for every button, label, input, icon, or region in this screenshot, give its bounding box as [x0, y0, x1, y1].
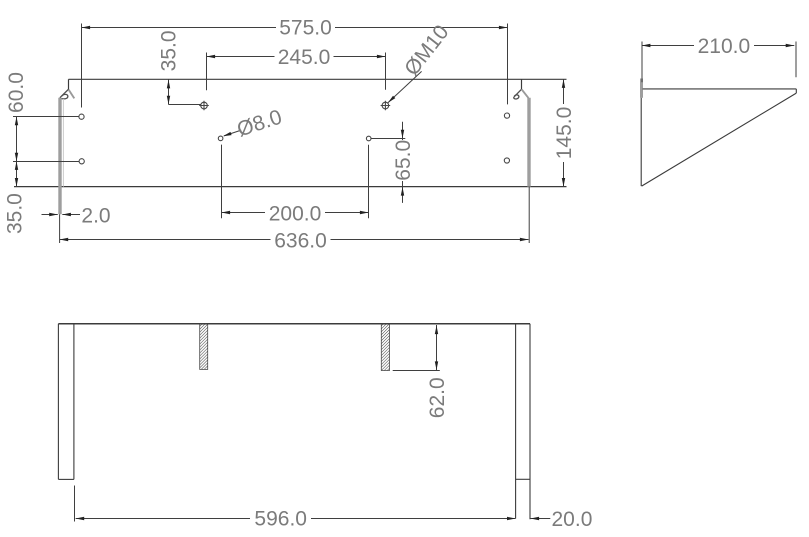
svg-text:145.0: 145.0: [553, 107, 576, 160]
svg-text:62.0: 62.0: [426, 377, 449, 418]
svg-text:35.0: 35.0: [4, 193, 27, 234]
svg-text:636.0: 636.0: [274, 230, 327, 253]
svg-text:2.0: 2.0: [81, 204, 110, 227]
svg-text:65.0: 65.0: [392, 140, 415, 181]
svg-text:35.0: 35.0: [158, 30, 181, 71]
svg-text:575.0: 575.0: [279, 17, 332, 40]
svg-text:200.0: 200.0: [269, 203, 322, 226]
svg-text:60.0: 60.0: [5, 72, 28, 113]
svg-text:20.0: 20.0: [552, 508, 593, 531]
svg-text:210.0: 210.0: [698, 35, 751, 58]
svg-text:245.0: 245.0: [278, 46, 331, 69]
svg-text:596.0: 596.0: [254, 507, 307, 530]
